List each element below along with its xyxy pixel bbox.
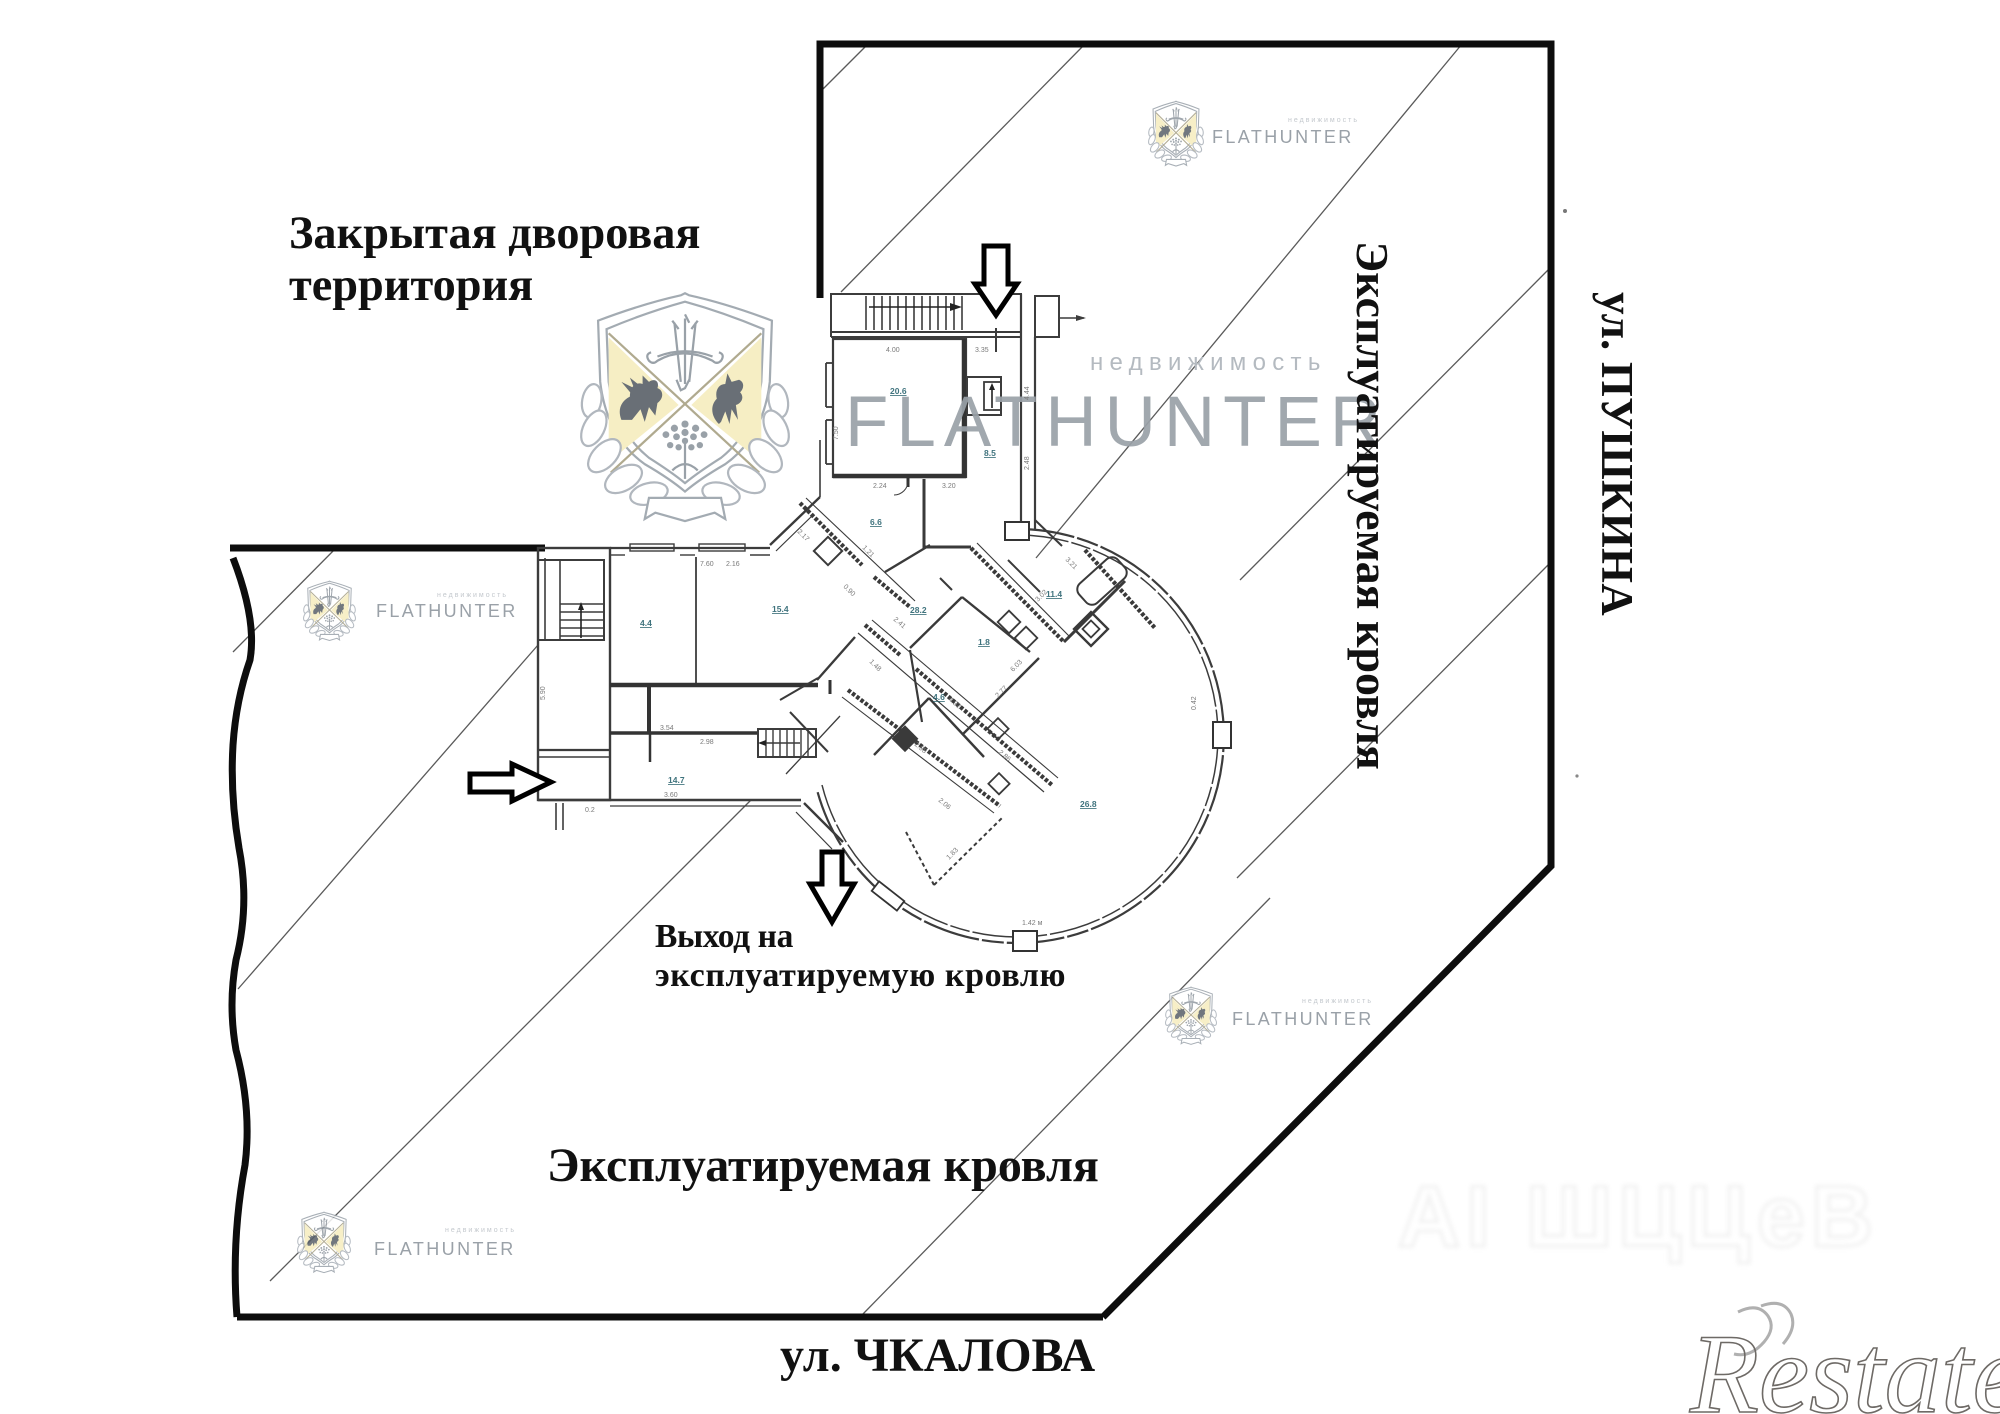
svg-text:АІ ШЦЦеВ: АІ ШЦЦеВ bbox=[1398, 1169, 1879, 1265]
svg-text:28.2: 28.2 bbox=[910, 605, 927, 615]
svg-text:ул. ЧКАЛОВА: ул. ЧКАЛОВА bbox=[780, 1329, 1096, 1382]
svg-text:ул. ПУШКИНА: ул. ПУШКИНА bbox=[1592, 292, 1642, 616]
svg-text:FLATHUNTER: FLATHUNTER bbox=[845, 383, 1389, 462]
svg-text:1.42 м: 1.42 м bbox=[1022, 920, 1043, 927]
svg-text:недвижимость: недвижимость bbox=[1090, 349, 1327, 376]
svg-text:3.60: 3.60 bbox=[664, 792, 678, 799]
svg-text:2.24: 2.24 bbox=[873, 483, 887, 490]
svg-text:недвижимость: недвижимость bbox=[1302, 998, 1373, 1005]
svg-text:8.5: 8.5 bbox=[984, 448, 996, 458]
svg-text:5.90: 5.90 bbox=[540, 686, 547, 700]
svg-text:2.16: 2.16 bbox=[726, 561, 740, 568]
svg-text:FLATHUNTER: FLATHUNTER bbox=[376, 601, 518, 621]
svg-text:Эксплуатируемая кровля: Эксплуатируемая кровля bbox=[547, 1139, 1099, 1192]
svg-text:2.48: 2.48 bbox=[1024, 456, 1031, 470]
svg-text:7.50: 7.50 bbox=[833, 426, 840, 440]
svg-text:0.2: 0.2 bbox=[585, 807, 595, 814]
svg-text:3.54: 3.54 bbox=[660, 725, 674, 732]
svg-text:4.6: 4.6 bbox=[933, 692, 945, 702]
svg-text:4.4: 4.4 bbox=[640, 618, 652, 628]
svg-text:Выход на: Выход на bbox=[655, 918, 794, 955]
svg-text:4.44: 4.44 bbox=[1024, 386, 1031, 400]
svg-text:Закрытая дворовая: Закрытая дворовая bbox=[289, 208, 700, 259]
svg-text:FLATHUNTER: FLATHUNTER bbox=[1232, 1009, 1374, 1029]
svg-text:26.8: 26.8 bbox=[1080, 799, 1097, 809]
svg-text:недвижимость: недвижимость bbox=[445, 1227, 516, 1234]
svg-text:недвижимость: недвижимость bbox=[1288, 117, 1359, 124]
svg-text:20.6: 20.6 bbox=[890, 386, 907, 396]
svg-text:FLATHUNTER: FLATHUNTER bbox=[1212, 127, 1354, 147]
svg-text:3.20: 3.20 bbox=[942, 483, 956, 490]
svg-text:Restate: Restate bbox=[1689, 1312, 2000, 1414]
svg-text:6.6: 6.6 bbox=[870, 517, 882, 527]
svg-text:4.00: 4.00 bbox=[886, 347, 900, 354]
svg-text:эксплуатируемую кровлю: эксплуатируемую кровлю bbox=[655, 957, 1066, 994]
svg-text:территория: территория bbox=[289, 260, 533, 311]
svg-text:15.4: 15.4 bbox=[772, 604, 789, 614]
svg-text:Эксплуатируемая кровля: Эксплуатируемая кровля bbox=[1347, 241, 1398, 770]
svg-text:недвижимость: недвижимость bbox=[437, 592, 508, 599]
svg-text:1.8: 1.8 bbox=[978, 637, 990, 647]
svg-text:0.42: 0.42 bbox=[1191, 696, 1198, 710]
svg-text:14.7: 14.7 bbox=[668, 775, 685, 785]
svg-text:2.98: 2.98 bbox=[700, 739, 714, 746]
svg-text:7.60: 7.60 bbox=[700, 561, 714, 568]
svg-text:3.35: 3.35 bbox=[975, 347, 989, 354]
svg-text:FLATHUNTER: FLATHUNTER bbox=[374, 1239, 516, 1259]
